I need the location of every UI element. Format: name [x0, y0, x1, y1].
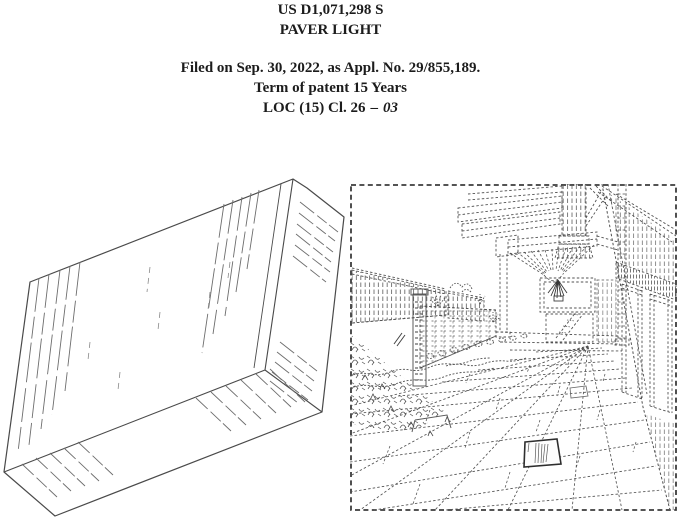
loc-prefix: LOC (15) Cl. 26 — [263, 100, 366, 116]
patent-header: US D1,071,298 S PAVER LIGHT Filed on Sep… — [0, 0, 661, 118]
filed-line: Filed on Sep. 30, 2022, as Appl. No. 29/… — [0, 58, 661, 78]
figure-paver-light-perspective — [0, 172, 348, 518]
doorway — [540, 278, 595, 312]
slab-outline — [4, 179, 344, 516]
cornice — [458, 186, 562, 257]
installed-paver-light — [524, 439, 561, 467]
bottom-face-hatching — [22, 369, 305, 497]
loc-class: 03 — [383, 100, 398, 116]
hanging-basket — [548, 280, 567, 298]
term-line: Term of patent 15 Years — [0, 78, 661, 98]
environment-scene — [350, 184, 676, 510]
patent-title: PAVER LIGHT — [0, 20, 661, 40]
left-column — [496, 254, 510, 337]
loc-line: LOC (15) Cl. 26–03 — [0, 98, 661, 118]
lower-siding — [646, 414, 676, 510]
environment-drawing — [350, 184, 677, 511]
figure-environment-view — [350, 184, 677, 511]
loc-separator: – — [371, 100, 379, 116]
paver-light-drawing — [0, 172, 348, 518]
front-face-hatching — [18, 190, 259, 452]
chimney — [555, 184, 606, 258]
right-building — [590, 184, 676, 510]
surface-tick-marks — [88, 262, 230, 390]
porch-panel — [546, 280, 616, 342]
end-face-hatching — [270, 202, 338, 403]
patent-number: US D1,071,298 S — [0, 0, 661, 20]
